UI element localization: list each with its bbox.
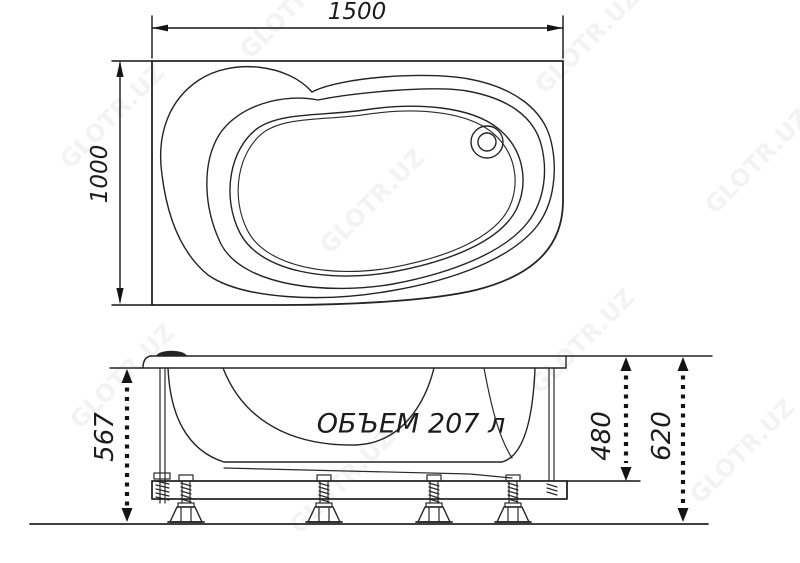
dimension-overall-height: 620 bbox=[647, 357, 689, 522]
rim-contour-outer bbox=[161, 67, 555, 298]
tub-panel-outline bbox=[152, 61, 563, 305]
watermark-text: GLOTR.UZ bbox=[314, 143, 430, 259]
watermark-text: GLOTR.UZ bbox=[699, 103, 800, 219]
watermark-text: GLOTR.UZ bbox=[64, 318, 180, 434]
drain-inner-circle bbox=[478, 133, 496, 151]
overall-height-label: 620 bbox=[647, 411, 677, 461]
bathtub-technical-drawing: GLOTR.UZ GLOTR.UZ GLOTR.UZ GLOTR.UZ GLOT… bbox=[0, 0, 800, 563]
dimension-body-height: 480 bbox=[587, 357, 632, 481]
watermark-text: GLOTR.UZ bbox=[529, 0, 645, 99]
depth-dimension-label: 1000 bbox=[87, 145, 113, 204]
body-height-label: 480 bbox=[587, 411, 617, 461]
apron-left-curve bbox=[168, 368, 224, 462]
top-view: 1500 1000 bbox=[87, 0, 563, 305]
watermark-text: GLOTR.UZ bbox=[524, 283, 640, 399]
left-support-rod bbox=[154, 368, 170, 503]
watermark-text: GLOTR.UZ bbox=[684, 393, 800, 509]
right-rod-threads bbox=[547, 484, 557, 495]
drain-outer-circle bbox=[471, 126, 503, 158]
volume-label: ОБЪЕМ 207 л bbox=[317, 409, 506, 440]
height-under-rim-label: 567 bbox=[90, 412, 120, 462]
dimension-width: 1500 bbox=[152, 0, 563, 58]
watermark-layer: GLOTR.UZ GLOTR.UZ GLOTR.UZ GLOTR.UZ GLOT… bbox=[54, 0, 800, 539]
width-dimension-label: 1500 bbox=[328, 0, 387, 25]
